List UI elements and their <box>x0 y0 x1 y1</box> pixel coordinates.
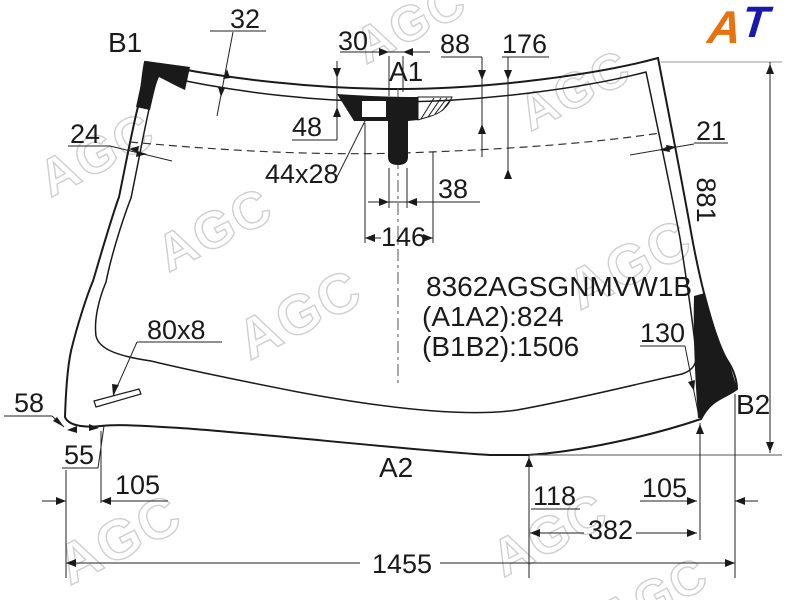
b2-corner-patch <box>694 293 737 418</box>
dim-38-stem: 38 <box>368 168 480 208</box>
dim-label-24: 24 <box>70 119 100 149</box>
dim-80x8-slot: 80x8 <box>112 315 222 396</box>
a1a2-distance: (A1A2):824 <box>422 301 564 332</box>
dim-48: 48 <box>292 61 341 142</box>
label-b2: B2 <box>736 389 770 420</box>
dim-21-right-band: 21 <box>630 116 728 155</box>
agc-watermark: AGC <box>148 177 283 284</box>
dim-label-88: 88 <box>440 29 470 59</box>
label-a2: A2 <box>379 452 413 483</box>
label-a1: A1 <box>389 56 423 87</box>
dim-label-382: 382 <box>588 515 633 545</box>
b1b2-distance: (B1B2):1506 <box>422 331 579 362</box>
dim-label-1455: 1455 <box>372 549 432 579</box>
agc-watermark: AGC <box>593 547 717 600</box>
at-logo-letter-a: A <box>705 0 744 54</box>
dim-label-176: 176 <box>502 29 547 59</box>
dim-label-55: 55 <box>64 440 94 470</box>
agc-watermark: AGC <box>30 102 165 209</box>
dim-label-21: 21 <box>696 116 726 146</box>
dim-55-corner: 55 <box>62 424 104 470</box>
dim-88: 88 <box>440 29 486 157</box>
dim-label-30: 30 <box>338 26 368 56</box>
part-number: 8362AGSGNMVW1B <box>426 271 692 302</box>
dim-label-881: 881 <box>691 177 721 222</box>
slot-80x8 <box>94 389 141 407</box>
dim-label-32: 32 <box>230 4 260 34</box>
at-logo-letter-t: T <box>739 0 771 48</box>
dim-label-80x8: 80x8 <box>147 315 206 345</box>
dim-label-48: 48 <box>292 112 322 142</box>
label-b1: B1 <box>108 27 142 58</box>
dim-label-146: 146 <box>381 222 426 252</box>
dim-105-right: 105 <box>640 394 758 578</box>
at-logo: T A <box>706 0 796 52</box>
dim-label-105-left: 105 <box>115 470 160 500</box>
dim-label-105-right: 105 <box>642 473 687 503</box>
dim-1455-total-width: 1455 <box>66 549 735 579</box>
windshield-diagram: AGC AGC AGC AGC AGC AGC AGC AGC AGC <box>0 0 800 600</box>
dim-label-44x28: 44x28 <box>265 159 339 189</box>
dim-label-118: 118 <box>533 481 576 511</box>
part-info-block: 8362AGSGNMVW1B (A1A2):824 (B1B2):1506 <box>422 271 692 362</box>
dim-label-130: 130 <box>640 318 685 348</box>
dim-58-corner: 58 <box>4 388 64 427</box>
dim-label-38: 38 <box>438 174 468 204</box>
mirror-mount-window <box>362 101 386 117</box>
dim-32-top-band: 32 <box>210 4 266 116</box>
agc-watermark: AGC <box>557 206 702 321</box>
dim-label-58: 58 <box>14 388 44 418</box>
agc-watermark: AGC <box>227 256 372 371</box>
dim-130-corner: 130 <box>640 318 699 417</box>
